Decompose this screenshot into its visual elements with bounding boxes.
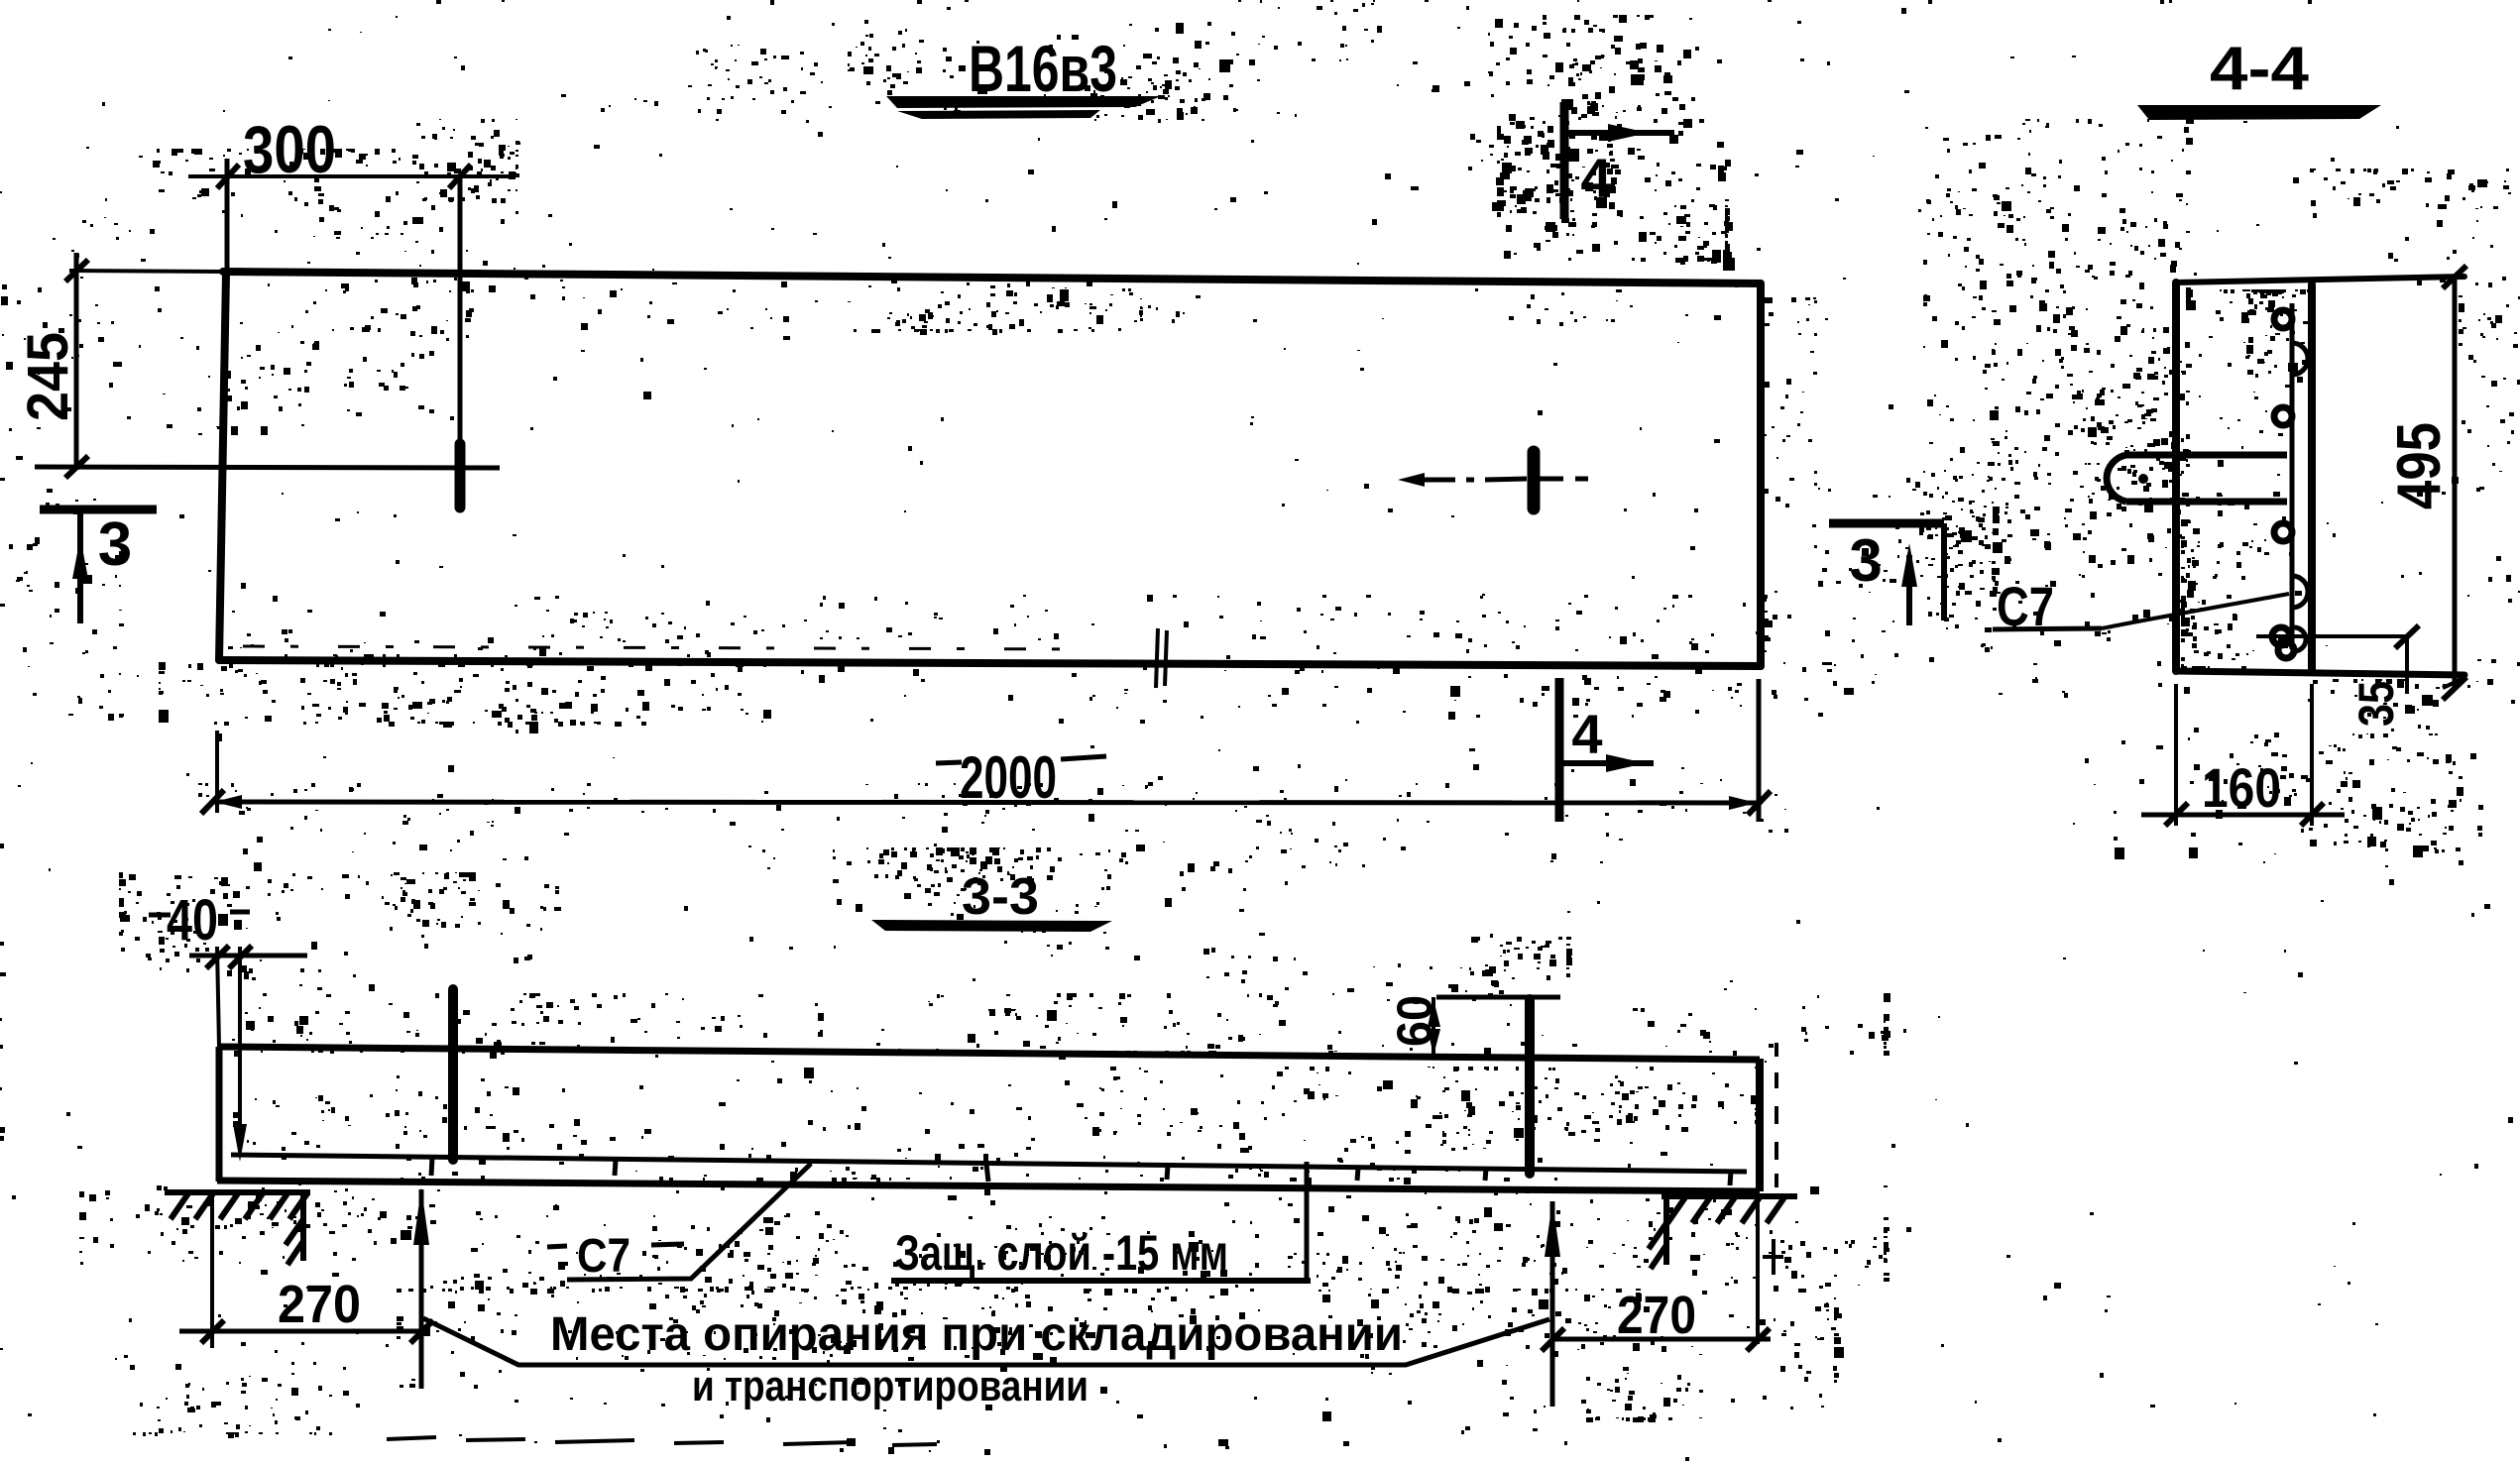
svg-text:Места опирания при складирован: Места опирания при складировании [550, 1308, 1403, 1361]
svg-text:270: 270 [1617, 1286, 1696, 1345]
svg-text:4-4: 4-4 [2210, 35, 2310, 103]
svg-text:3: 3 [1849, 527, 1882, 594]
svg-text:4: 4 [1571, 703, 1602, 765]
svg-text:и транспортировании: и транспортировании [692, 1362, 1088, 1410]
svg-text:2000: 2000 [960, 744, 1057, 811]
svg-text:270: 270 [278, 1275, 361, 1334]
svg-text:3: 3 [98, 510, 132, 579]
